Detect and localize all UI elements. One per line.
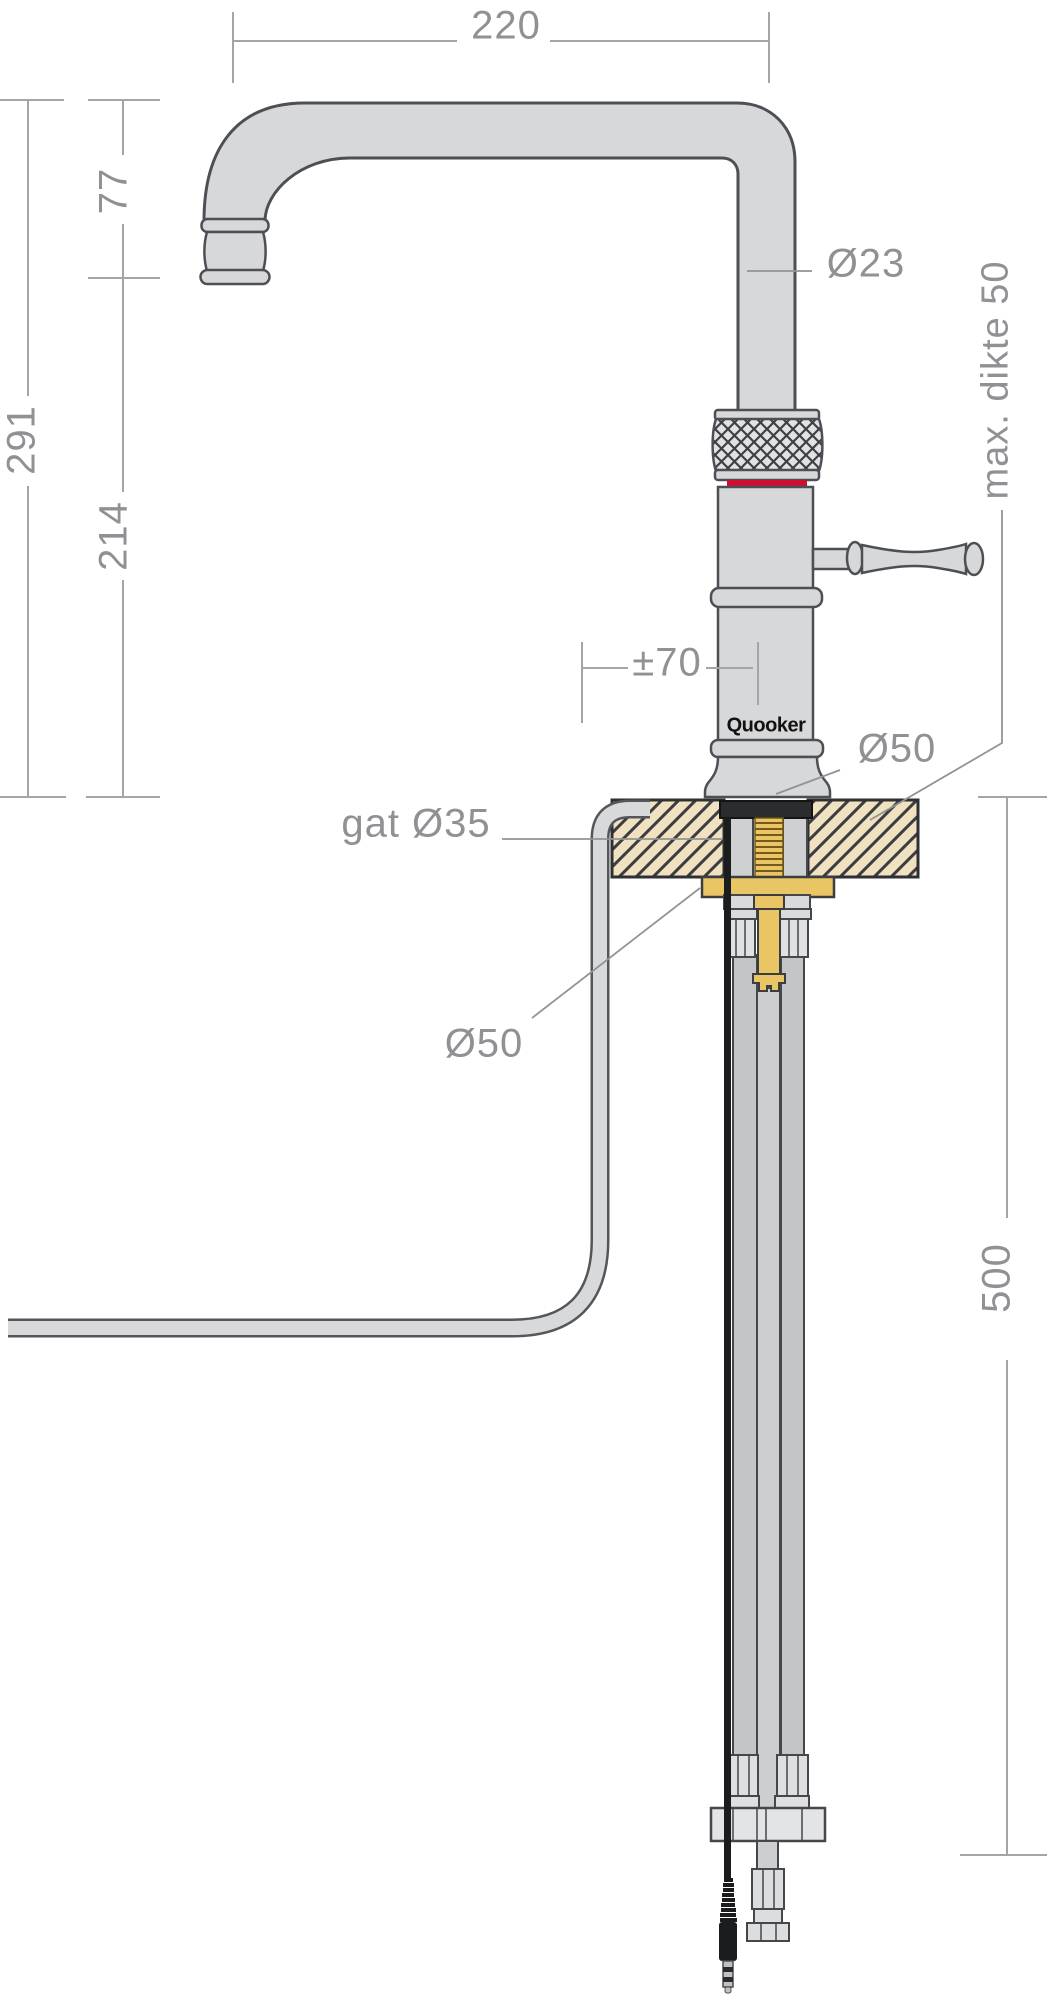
tap-spout <box>204 103 795 411</box>
supply-cable <box>8 809 650 1328</box>
dimension-lines <box>0 12 1047 1855</box>
knurled-nut <box>713 410 823 480</box>
dim-hole-diameter: gat Ø35 <box>341 802 490 847</box>
dim-body-height: 214 <box>92 501 137 571</box>
dim-below-worktop-clearance: 500 <box>975 1243 1020 1313</box>
dim-base-diameter: Ø50 <box>858 727 937 772</box>
installation-diagram: 220 77 291 214 Ø23 max. dikte 50 ±70 Ø50… <box>0 0 1048 2000</box>
threaded-stud <box>755 818 783 878</box>
dim-handle-clearance: ±70 <box>632 641 701 686</box>
brass-fixing-rod <box>753 895 785 991</box>
dim-spout-diameter: Ø23 <box>827 242 906 287</box>
spout-nozzle <box>201 219 270 284</box>
dim-spout-reach: 220 <box>471 4 541 49</box>
dim-spout-clearance: 77 <box>92 168 137 215</box>
tap-handle <box>813 542 983 575</box>
quooker-logo: Quooker <box>727 715 806 738</box>
diagram-artwork <box>0 0 1048 2000</box>
dim-total-height: 291 <box>0 405 45 475</box>
dim-max-worktop-thickness: max. dikte 50 <box>975 261 1018 500</box>
tap-body <box>705 487 830 797</box>
gasket-ring <box>720 801 812 818</box>
jack-plug <box>719 1922 737 1993</box>
dim-flange-diameter: Ø50 <box>445 1022 524 1067</box>
